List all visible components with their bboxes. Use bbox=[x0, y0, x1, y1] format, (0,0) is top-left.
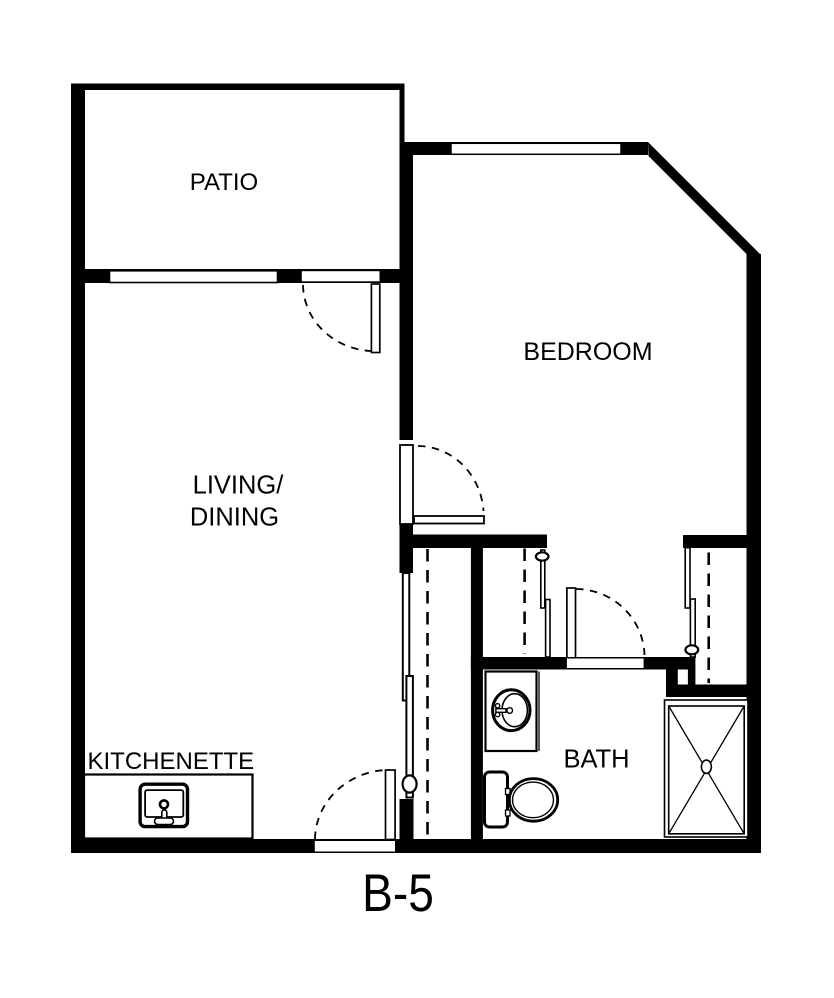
svg-text:LIVING/: LIVING/ bbox=[193, 472, 285, 500]
svg-text:PATIO: PATIO bbox=[190, 169, 258, 196]
svg-text:BATH: BATH bbox=[563, 746, 629, 774]
svg-text:KITCHENETTE: KITCHENETTE bbox=[88, 748, 255, 775]
svg-text:B-5: B-5 bbox=[362, 863, 434, 923]
svg-text:BEDROOM: BEDROOM bbox=[523, 338, 652, 366]
svg-text:DINING: DINING bbox=[190, 504, 279, 532]
